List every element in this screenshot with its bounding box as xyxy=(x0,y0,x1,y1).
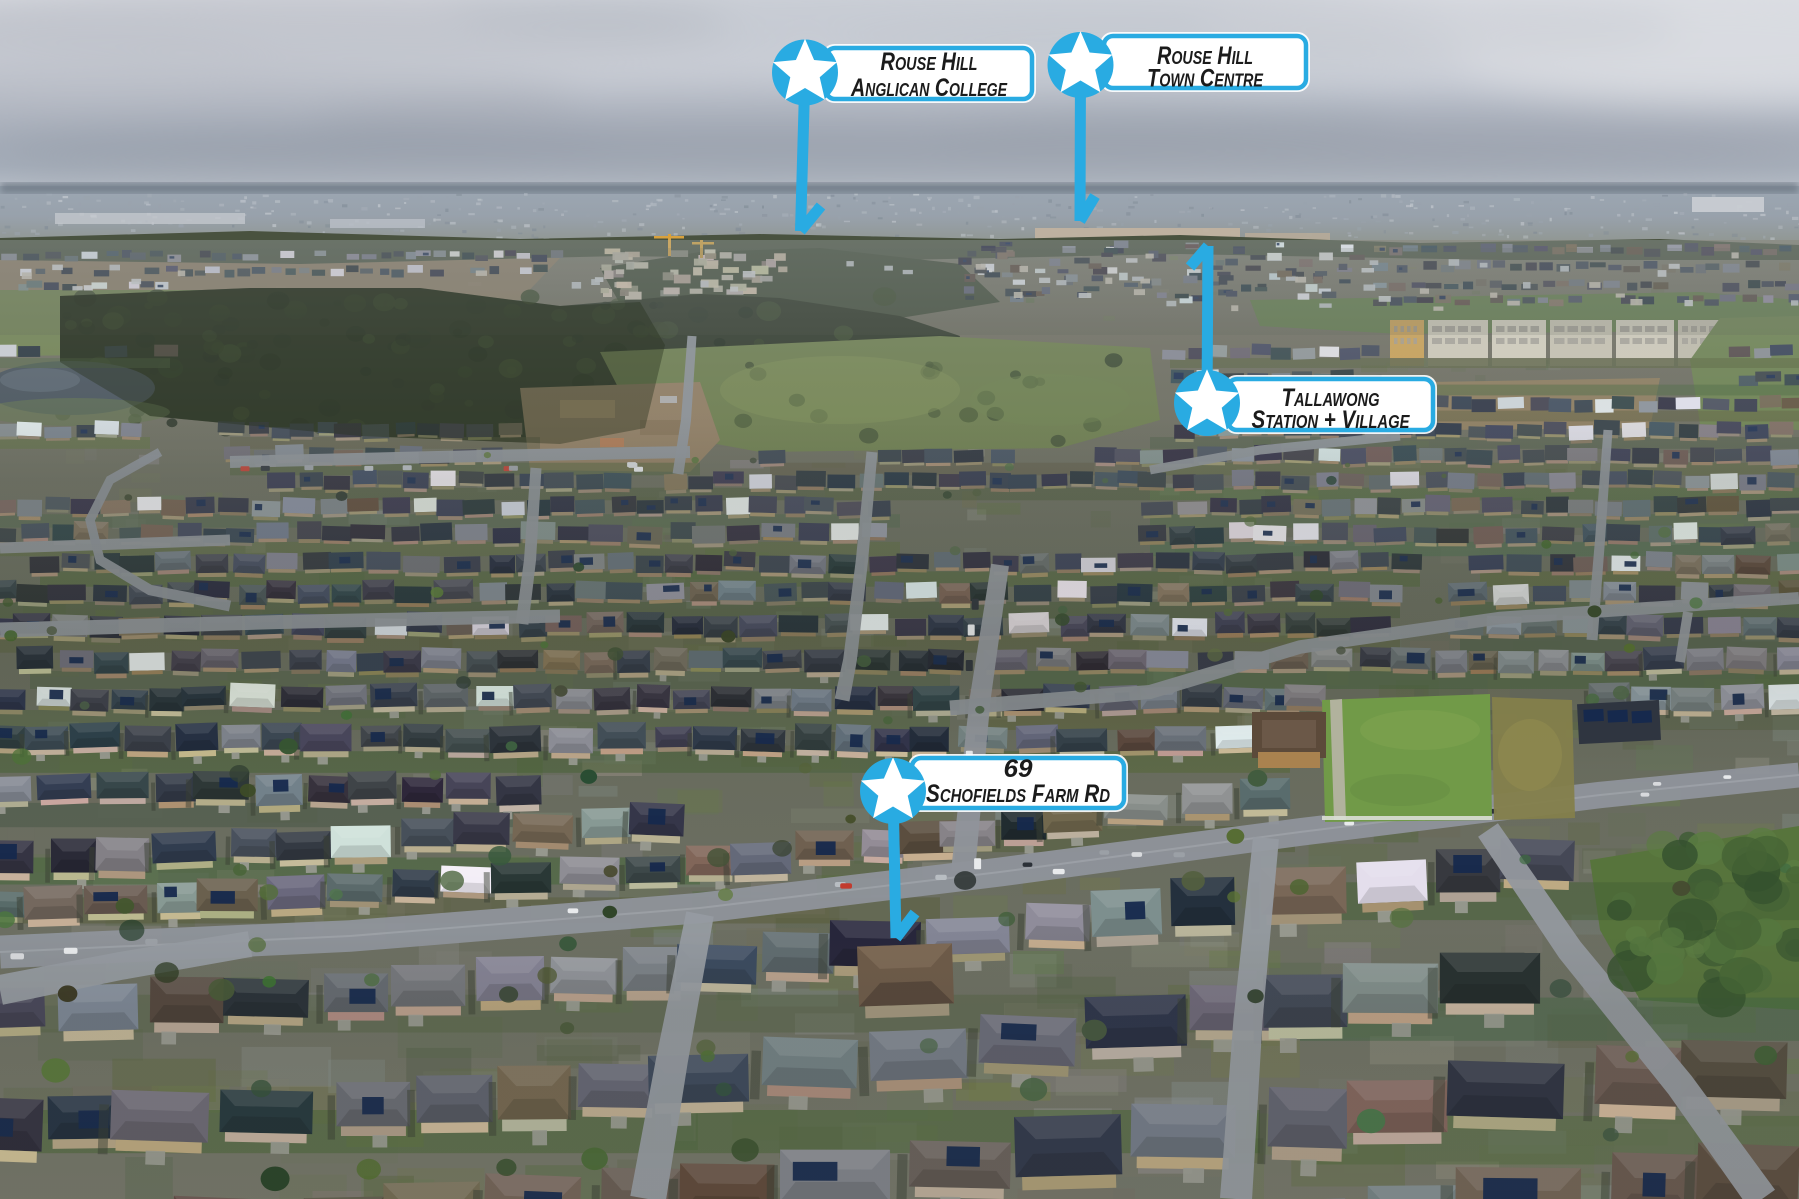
svg-text:69: 69 xyxy=(1004,755,1033,783)
svg-text:Town Centre: Town Centre xyxy=(1147,65,1264,93)
svg-text:Anglican College: Anglican College xyxy=(850,74,1008,102)
svg-text:Station + Village: Station + Village xyxy=(1252,406,1411,434)
svg-text:Rouse Hill: Rouse Hill xyxy=(881,48,978,76)
svg-text:Schofields Farm Rd: Schofields Farm Rd xyxy=(926,780,1110,808)
